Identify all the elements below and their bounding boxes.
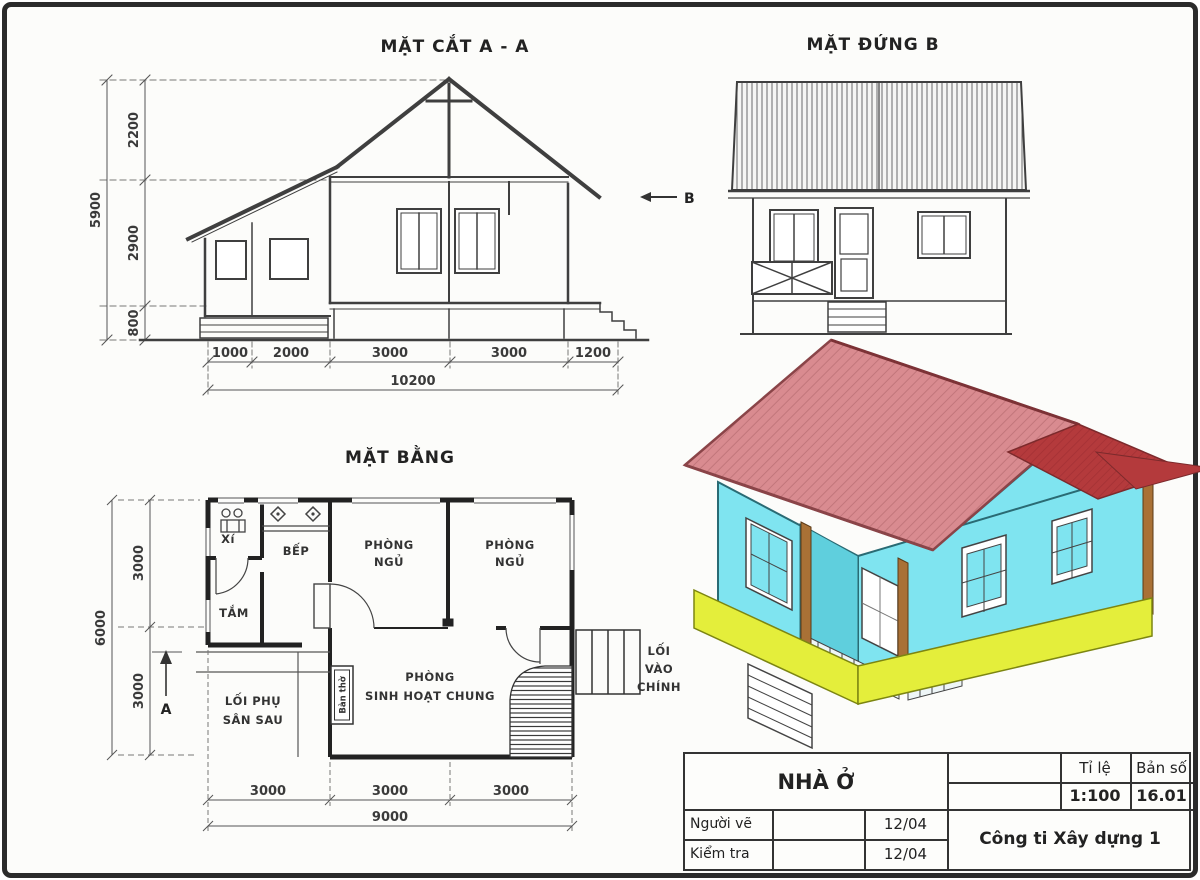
title-block-scale-label: Tỉ lệ [1060,754,1130,782]
house-3d [685,340,1200,748]
dim-label: 3000 [372,784,408,799]
dim-label: 9000 [372,810,408,825]
dim-label: 3000 [250,784,286,799]
room-label-bath: TẮM [219,604,249,620]
title-block-sheet-value: 16.01 [1130,782,1193,809]
dim-label: 3000 [493,784,529,799]
dim-label: 6000 [94,610,109,646]
elevation-title: MẶT ĐỨNG B [806,33,939,55]
dim-label: 1200 [575,346,611,361]
label-main-entry: VÀO [645,661,673,676]
plan-title: MẶT BẰNG [345,444,455,468]
section-building [140,79,648,340]
dim-label: 800 [127,309,142,336]
title-block-project: NHÀ Ở [685,754,947,809]
title-block-checked-date: 12/04 [864,839,947,869]
label-side-path: LỐI PHỤ [225,691,281,708]
view-marker-b: B [640,191,695,207]
section-marker-a-label: A [161,702,172,718]
house-3d-post [801,522,811,657]
room-label-bedroom1: NGỦ [374,553,404,569]
dim-label: 3000 [491,346,527,361]
title-block-drawn-date: 12/04 [864,809,947,839]
plan-doors [216,558,540,664]
title-block-sheet-label: Bản số [1130,754,1193,782]
title-block: NHÀ Ở Tỉ lệ Bản số 1:100 16.01 Người vẽ … [683,752,1191,871]
house-3d-post [1143,468,1153,614]
title-block-scale-value: 1:100 [1060,782,1130,809]
dim-label: 10200 [390,374,435,389]
dim-label: 5900 [89,192,104,228]
dim-label: 2000 [273,346,309,361]
house-3d-window [1052,509,1092,584]
view-marker-b-label: B [684,191,695,207]
elevation-view: MẶT ĐỨNG B [728,33,1030,334]
dim-label: 2900 [127,225,142,261]
room-label-bedroom2: PHÒNG [485,537,534,552]
room-label-bedroom1: PHÒNG [364,537,413,552]
title-block-checked-label: Kiểm tra [685,839,772,869]
dim-label: 3000 [372,346,408,361]
label-side-path: SÂN SAU [223,712,283,727]
dim-label: 3000 [132,673,147,709]
dim-label: 1000 [212,346,248,361]
altar-label: Bàn thờ [338,675,349,713]
toilet-icon [221,509,245,532]
section-title: MẶT CẮT A - A [381,33,530,57]
room-label-bedroom2: NGỦ [495,553,525,569]
section-marker-a: A [152,650,182,718]
house-3d-window [962,535,1006,617]
room-label-toilet: Xí [221,532,235,546]
title-block-company: Công ti Xây dựng 1 [947,809,1193,869]
entry-steps [576,630,640,694]
room-label-living: PHÒNG [405,669,454,684]
room-label-kitchen: BẾP [283,542,310,558]
elevation-building [728,82,1030,334]
dim-label: 3000 [132,545,147,581]
drawing-svg: MẶT CẮT A - A 2200 2900 800 5900 [0,0,1200,880]
dim-label: 2200 [127,112,142,148]
section-view: MẶT CẮT A - A 2200 2900 800 5900 [89,33,695,395]
plan-view: MẶT BẰNG [94,444,681,832]
kitchen-counter [262,507,330,531]
section-extension-lines [100,80,445,340]
title-block-drawn-label: Người vẽ [685,809,772,839]
room-label-living: SINH HOẠT CHUNG [365,689,495,703]
label-main-entry: LỐI [648,641,671,658]
label-main-entry: CHÍNH [637,679,681,694]
porch-hatch [510,666,572,757]
section-dim-left [102,75,150,345]
blueprint-sheet: MẶT CẮT A - A 2200 2900 800 5900 [0,0,1200,880]
